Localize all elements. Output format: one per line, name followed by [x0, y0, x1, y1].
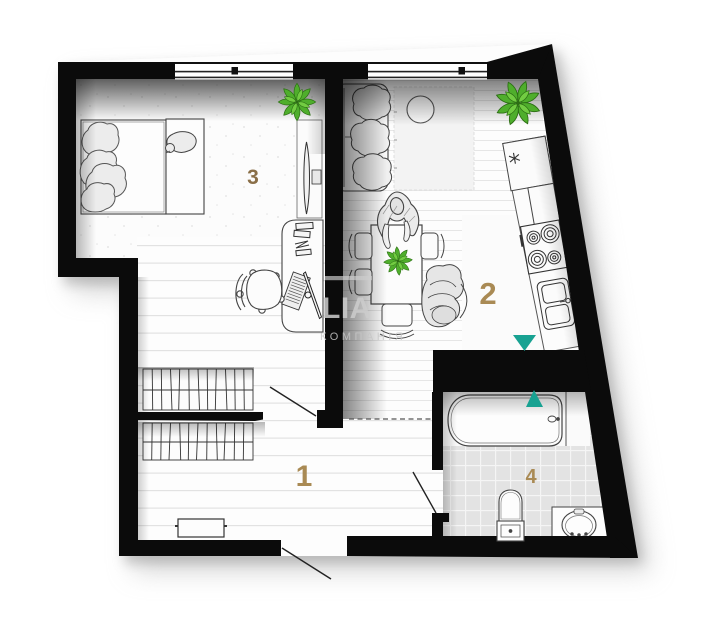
svg-text:2: 2 — [479, 276, 496, 311]
svg-text:1: 1 — [296, 460, 313, 493]
svg-text:4: 4 — [525, 466, 537, 488]
svg-text:КОМПАНІЯ: КОМПАНІЯ — [320, 331, 406, 343]
svg-text:LIA: LIA — [322, 292, 372, 325]
svg-text:3: 3 — [247, 166, 259, 189]
